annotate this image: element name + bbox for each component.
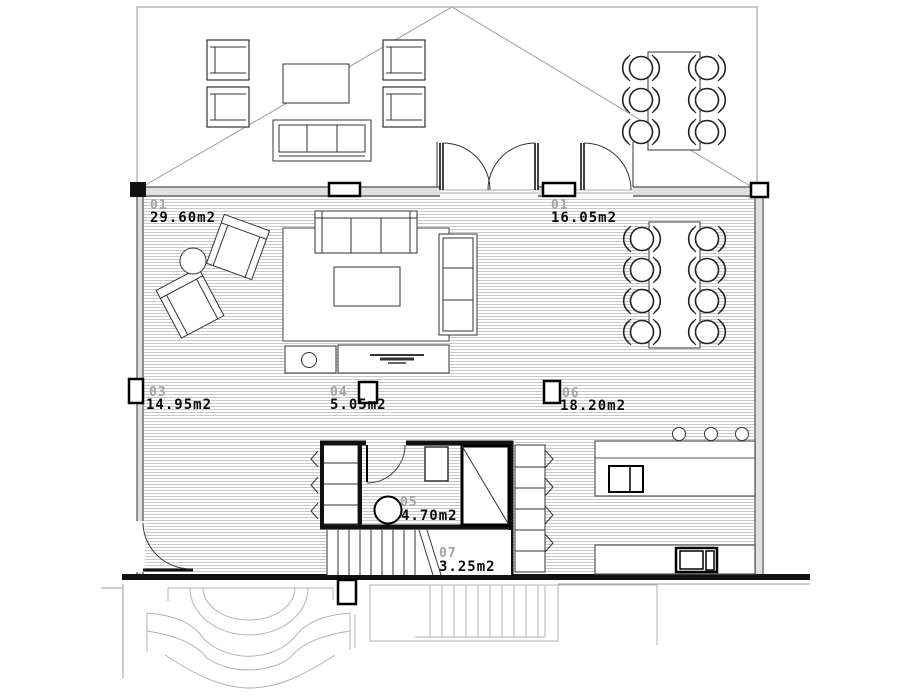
floor-plan-drawing: 01 29.60m2 01 16.05m2 03 14.95m2 04 5.05… [0, 0, 900, 700]
curved-entry-steps [147, 588, 355, 688]
terrace-armchair [207, 87, 249, 127]
column-post [338, 580, 356, 604]
column-post [129, 379, 143, 403]
room-label-area: 14.95m2 [146, 397, 212, 413]
terrace-coffee-table [283, 64, 349, 103]
sofa [315, 211, 417, 253]
coffee-table [334, 267, 400, 306]
right-wall [755, 190, 763, 575]
floor-plan-page: 01 29.60m2 01 16.05m2 03 14.95m2 04 5.05… [0, 0, 900, 700]
room-label-area: 3.25m2 [439, 559, 496, 575]
exterior-terrace-edge [101, 584, 810, 678]
column-post [543, 183, 575, 196]
chaise-longue [439, 234, 477, 335]
room-label-area: 4.70m2 [401, 508, 458, 524]
room-label-area: 29.60m2 [150, 210, 216, 226]
terrace-dining-table [648, 52, 700, 150]
kitchen-sink [609, 466, 643, 492]
shower [462, 446, 509, 525]
dining-table [649, 222, 700, 348]
pendant-lights [673, 428, 749, 441]
tv-console [338, 345, 449, 373]
terrace-armchair [383, 87, 425, 127]
room-label-area: 5.05m2 [330, 397, 387, 413]
terrace-armchair [383, 40, 425, 80]
side-table [180, 248, 206, 274]
side-cabinet [285, 346, 336, 373]
double-door [437, 142, 538, 190]
terrace-dining-set [623, 52, 726, 150]
room-label-area: 16.05m2 [551, 210, 617, 226]
column-post [544, 381, 560, 403]
terrace-sofa [273, 120, 371, 161]
exterior-staircase [370, 585, 657, 645]
room-label-area: 18.20m2 [560, 398, 626, 414]
kitchen-island [595, 441, 755, 496]
column-post [751, 183, 768, 197]
terrace-armchair [207, 40, 249, 80]
column-post [130, 182, 146, 197]
top-wall [137, 186, 763, 198]
kitchen-counter [595, 545, 755, 574]
single-door [581, 142, 633, 190]
column-post [329, 183, 360, 196]
toilet [375, 497, 402, 524]
bathroom-sink [425, 447, 448, 481]
